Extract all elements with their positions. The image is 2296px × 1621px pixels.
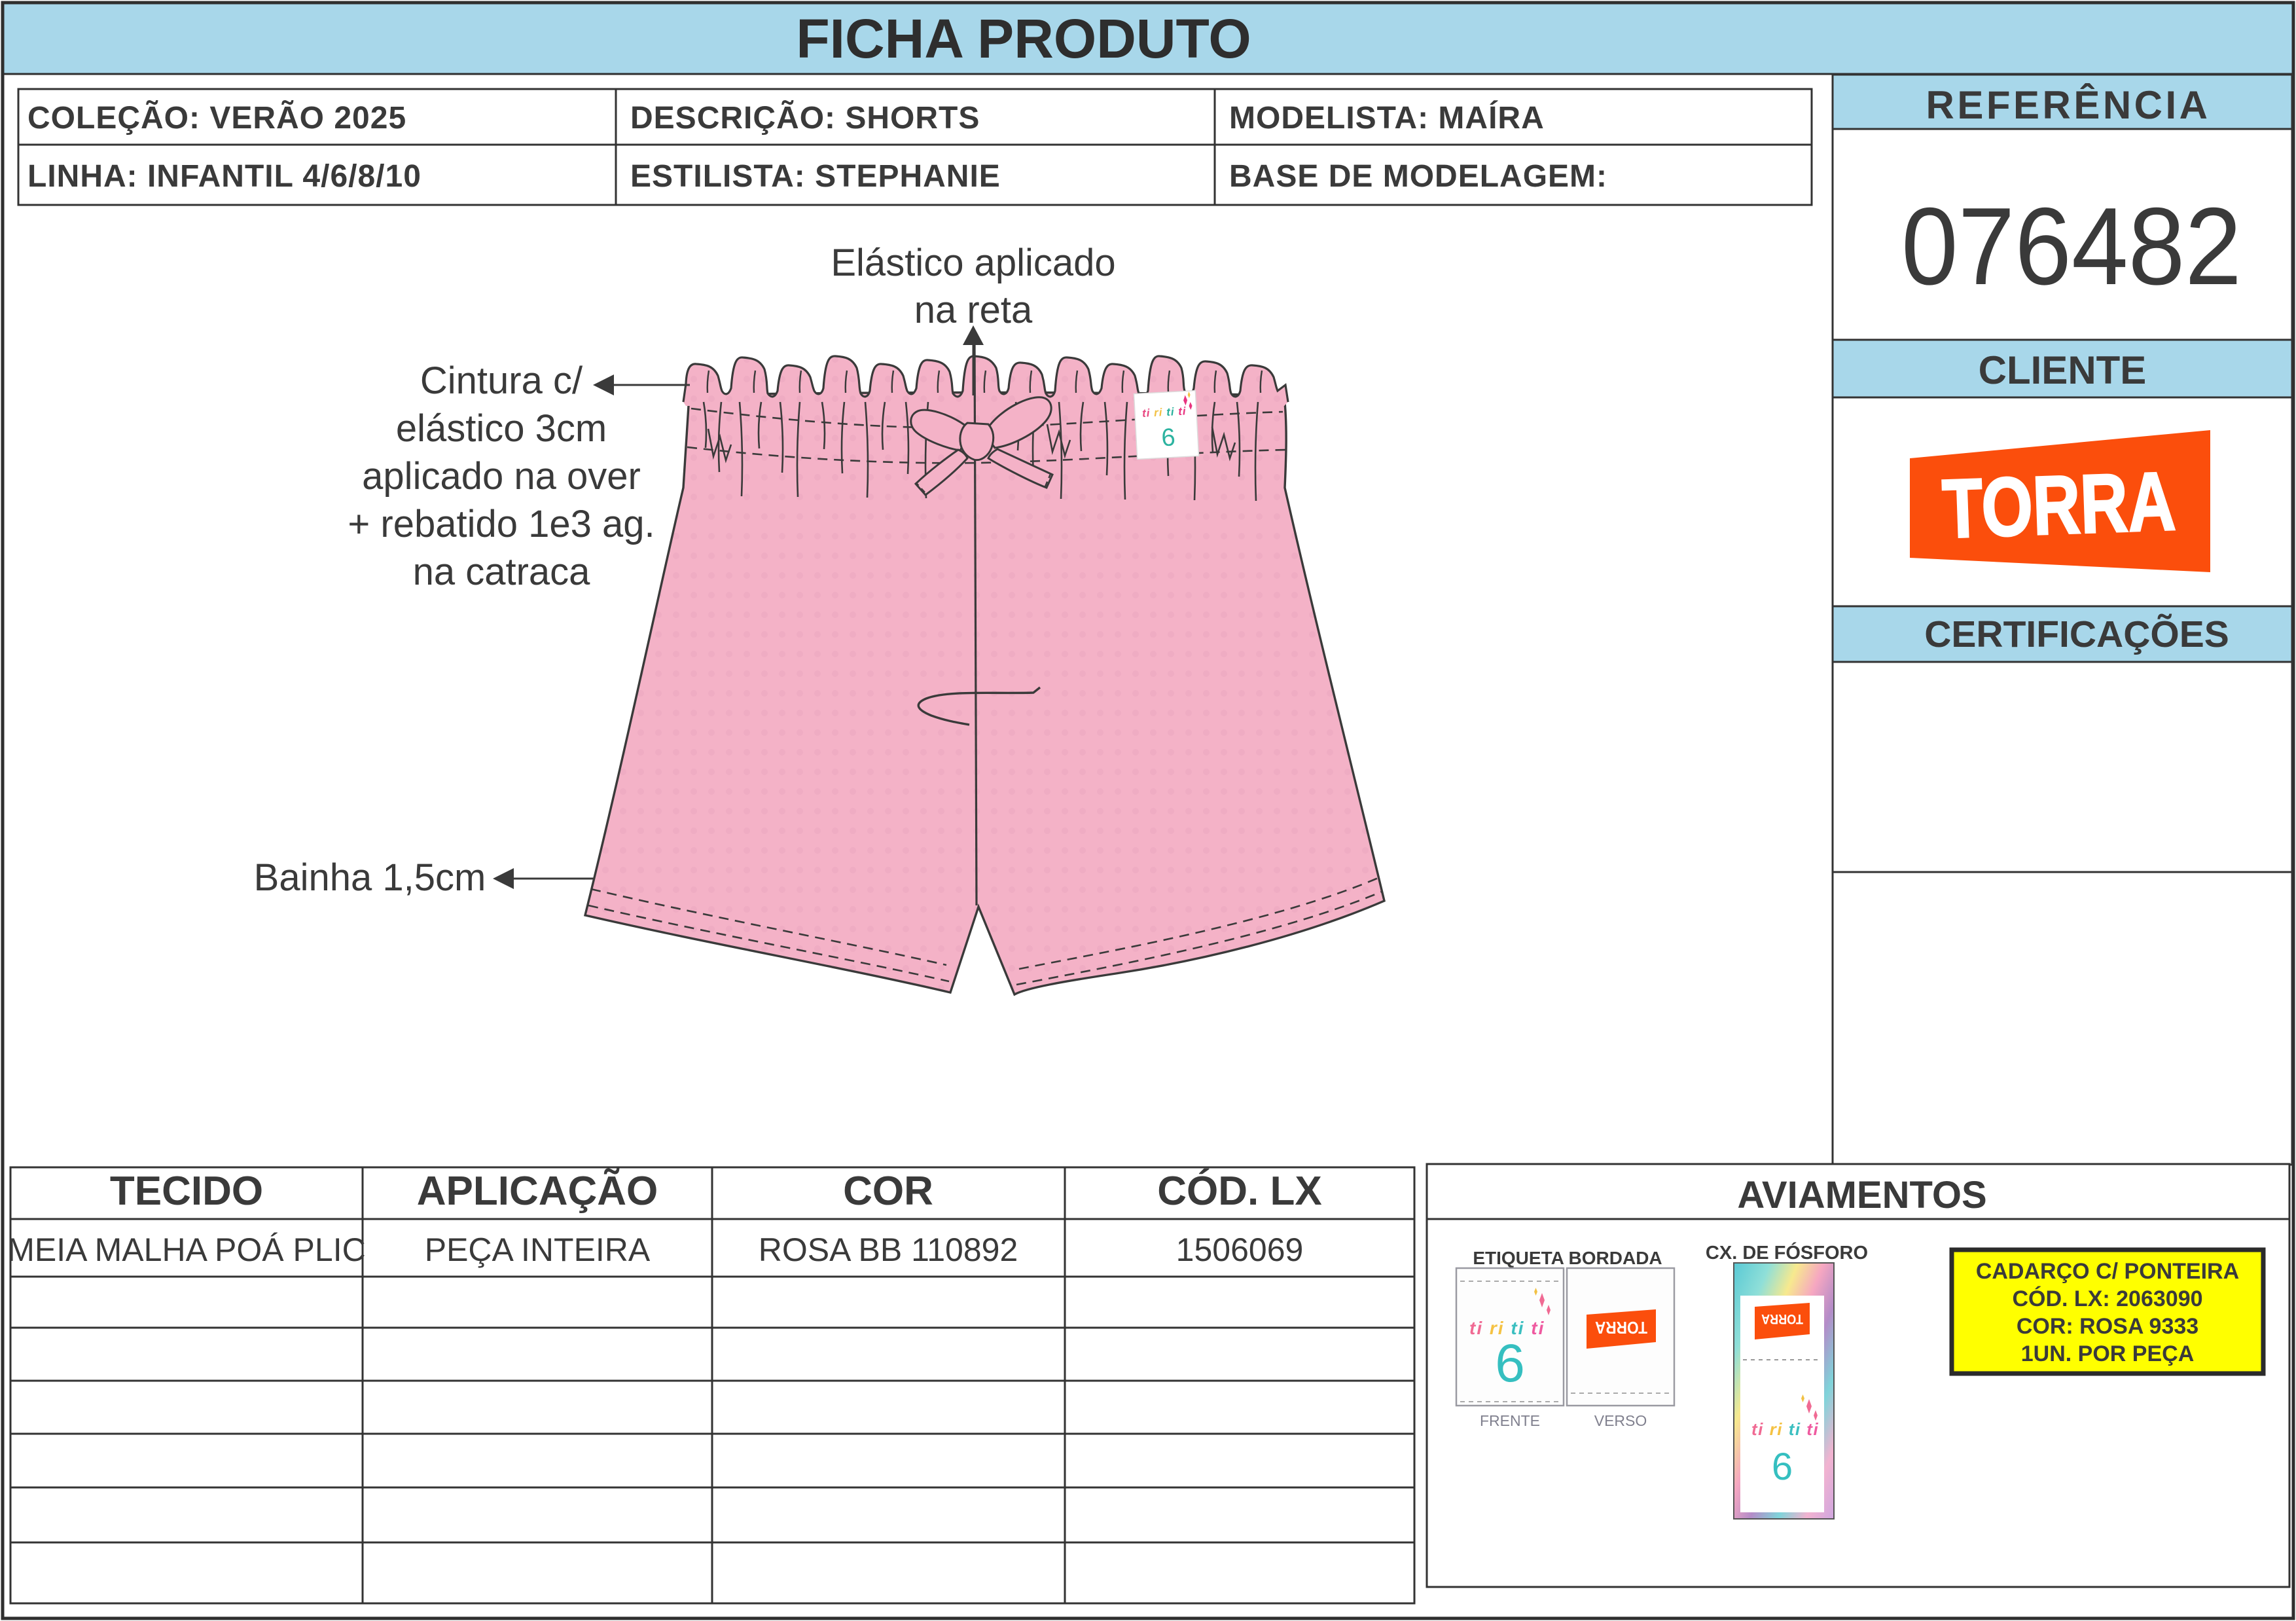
svg-text:TORRA: TORRA <box>1595 1318 1647 1338</box>
svg-text:elástico 3cm: elástico 3cm <box>396 407 607 450</box>
svg-text:ESTILISTA: STEPHANIE: ESTILISTA: STEPHANIE <box>630 159 1001 194</box>
svg-text:CADARÇO C/ PONTEIRA: CADARÇO C/ PONTEIRA <box>1976 1259 2239 1284</box>
svg-text:Cintura c/: Cintura c/ <box>420 359 583 402</box>
svg-text:TORRA: TORRA <box>1761 1311 1803 1326</box>
svg-text:na catraca: na catraca <box>413 551 591 593</box>
svg-text:CERTIFICAÇÕES: CERTIFICAÇÕES <box>1924 613 2229 655</box>
svg-text:LINHA: INFANTIL 4/6/8/10: LINHA: INFANTIL 4/6/8/10 <box>27 159 422 194</box>
svg-text:AVIAMENTOS: AVIAMENTOS <box>1737 1174 1986 1216</box>
svg-text:MEIA MALHA POÁ PLIC: MEIA MALHA POÁ PLIC <box>7 1231 365 1268</box>
svg-text:+ rebatido 1e3 ag.: + rebatido 1e3 ag. <box>348 503 655 545</box>
svg-text:ETIQUETA BORDADA: ETIQUETA BORDADA <box>1473 1248 1662 1268</box>
svg-text:ti ri ti ti: ti ri ti ti <box>1142 405 1187 420</box>
svg-text:CLIENTE: CLIENTE <box>1979 348 2147 392</box>
svg-text:DESCRIÇÃO: SHORTS: DESCRIÇÃO: SHORTS <box>630 100 980 136</box>
svg-text:TORRA: TORRA <box>1941 454 2177 555</box>
svg-text:FRENTE: FRENTE <box>1480 1412 1540 1429</box>
svg-text:1UN. POR PEÇA: 1UN. POR PEÇA <box>2021 1341 2195 1366</box>
svg-text:REFERÊNCIA: REFERÊNCIA <box>1926 83 2210 127</box>
svg-text:COR: COR <box>843 1169 933 1214</box>
svg-text:COLEÇÃO: VERÃO 2025: COLEÇÃO: VERÃO 2025 <box>27 100 406 136</box>
svg-text:FICHA PRODUTO: FICHA PRODUTO <box>796 8 1251 69</box>
svg-text:6: 6 <box>1772 1446 1793 1488</box>
svg-text:BASE DE MODELAGEM:: BASE DE MODELAGEM: <box>1229 159 1607 194</box>
svg-text:ROSA BB 110892: ROSA BB 110892 <box>759 1231 1018 1268</box>
svg-text:APLICAÇÃO: APLICAÇÃO <box>417 1169 658 1214</box>
svg-text:6: 6 <box>1495 1334 1525 1393</box>
svg-text:PEÇA INTEIRA: PEÇA INTEIRA <box>425 1231 651 1268</box>
svg-text:MODELISTA: MAÍRA: MODELISTA: MAÍRA <box>1229 100 1545 136</box>
svg-text:CÓD. LX: CÓD. LX <box>1157 1169 1321 1214</box>
svg-text:Bainha 1,5cm: Bainha 1,5cm <box>254 856 486 899</box>
svg-text:TECIDO: TECIDO <box>110 1169 263 1214</box>
svg-text:CX. DE FÓSFORO: CX. DE FÓSFORO <box>1706 1241 1868 1264</box>
svg-text:076482: 076482 <box>1901 185 2242 308</box>
svg-text:COR: ROSA 9333: COR: ROSA 9333 <box>2017 1314 2198 1339</box>
svg-text:VERSO: VERSO <box>1594 1412 1647 1429</box>
svg-text:aplicado na over: aplicado na over <box>362 455 641 498</box>
svg-text:ti ri ti ti: ti ri ti ti <box>1751 1419 1819 1439</box>
svg-text:na reta: na reta <box>914 289 1033 331</box>
svg-text:Elástico aplicado: Elástico aplicado <box>831 242 1115 284</box>
svg-text:CÓD. LX: 2063090: CÓD. LX: 2063090 <box>2012 1286 2202 1311</box>
svg-text:6: 6 <box>1160 424 1175 452</box>
svg-text:1506069: 1506069 <box>1176 1231 1304 1268</box>
